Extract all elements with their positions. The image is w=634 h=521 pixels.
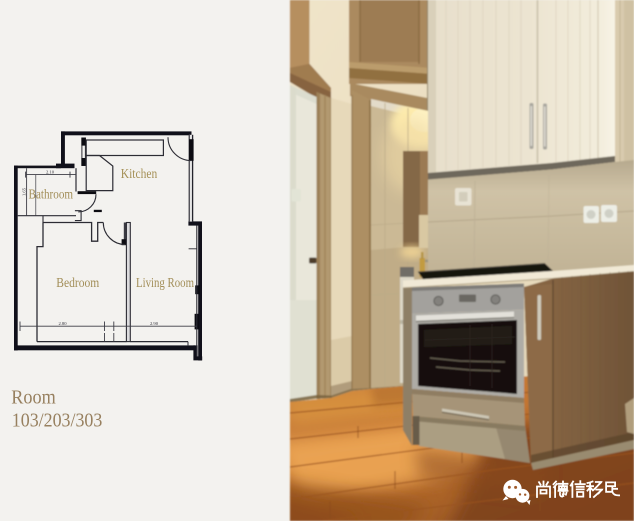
svg-text:2.90: 2.90 bbox=[150, 321, 159, 326]
svg-text:Kitchen: Kitchen bbox=[121, 167, 158, 182]
svg-text:2.80: 2.80 bbox=[58, 321, 67, 326]
svg-text:1.65: 1.65 bbox=[21, 187, 26, 196]
svg-text:103/203/303: 103/203/303 bbox=[12, 409, 103, 431]
svg-text:Bathroom: Bathroom bbox=[29, 186, 74, 201]
svg-text:Bedroom: Bedroom bbox=[56, 275, 99, 290]
svg-text:2.10: 2.10 bbox=[46, 169, 55, 174]
svg-text:Room: Room bbox=[11, 387, 56, 409]
svg-text:Living Room: Living Room bbox=[136, 275, 194, 290]
